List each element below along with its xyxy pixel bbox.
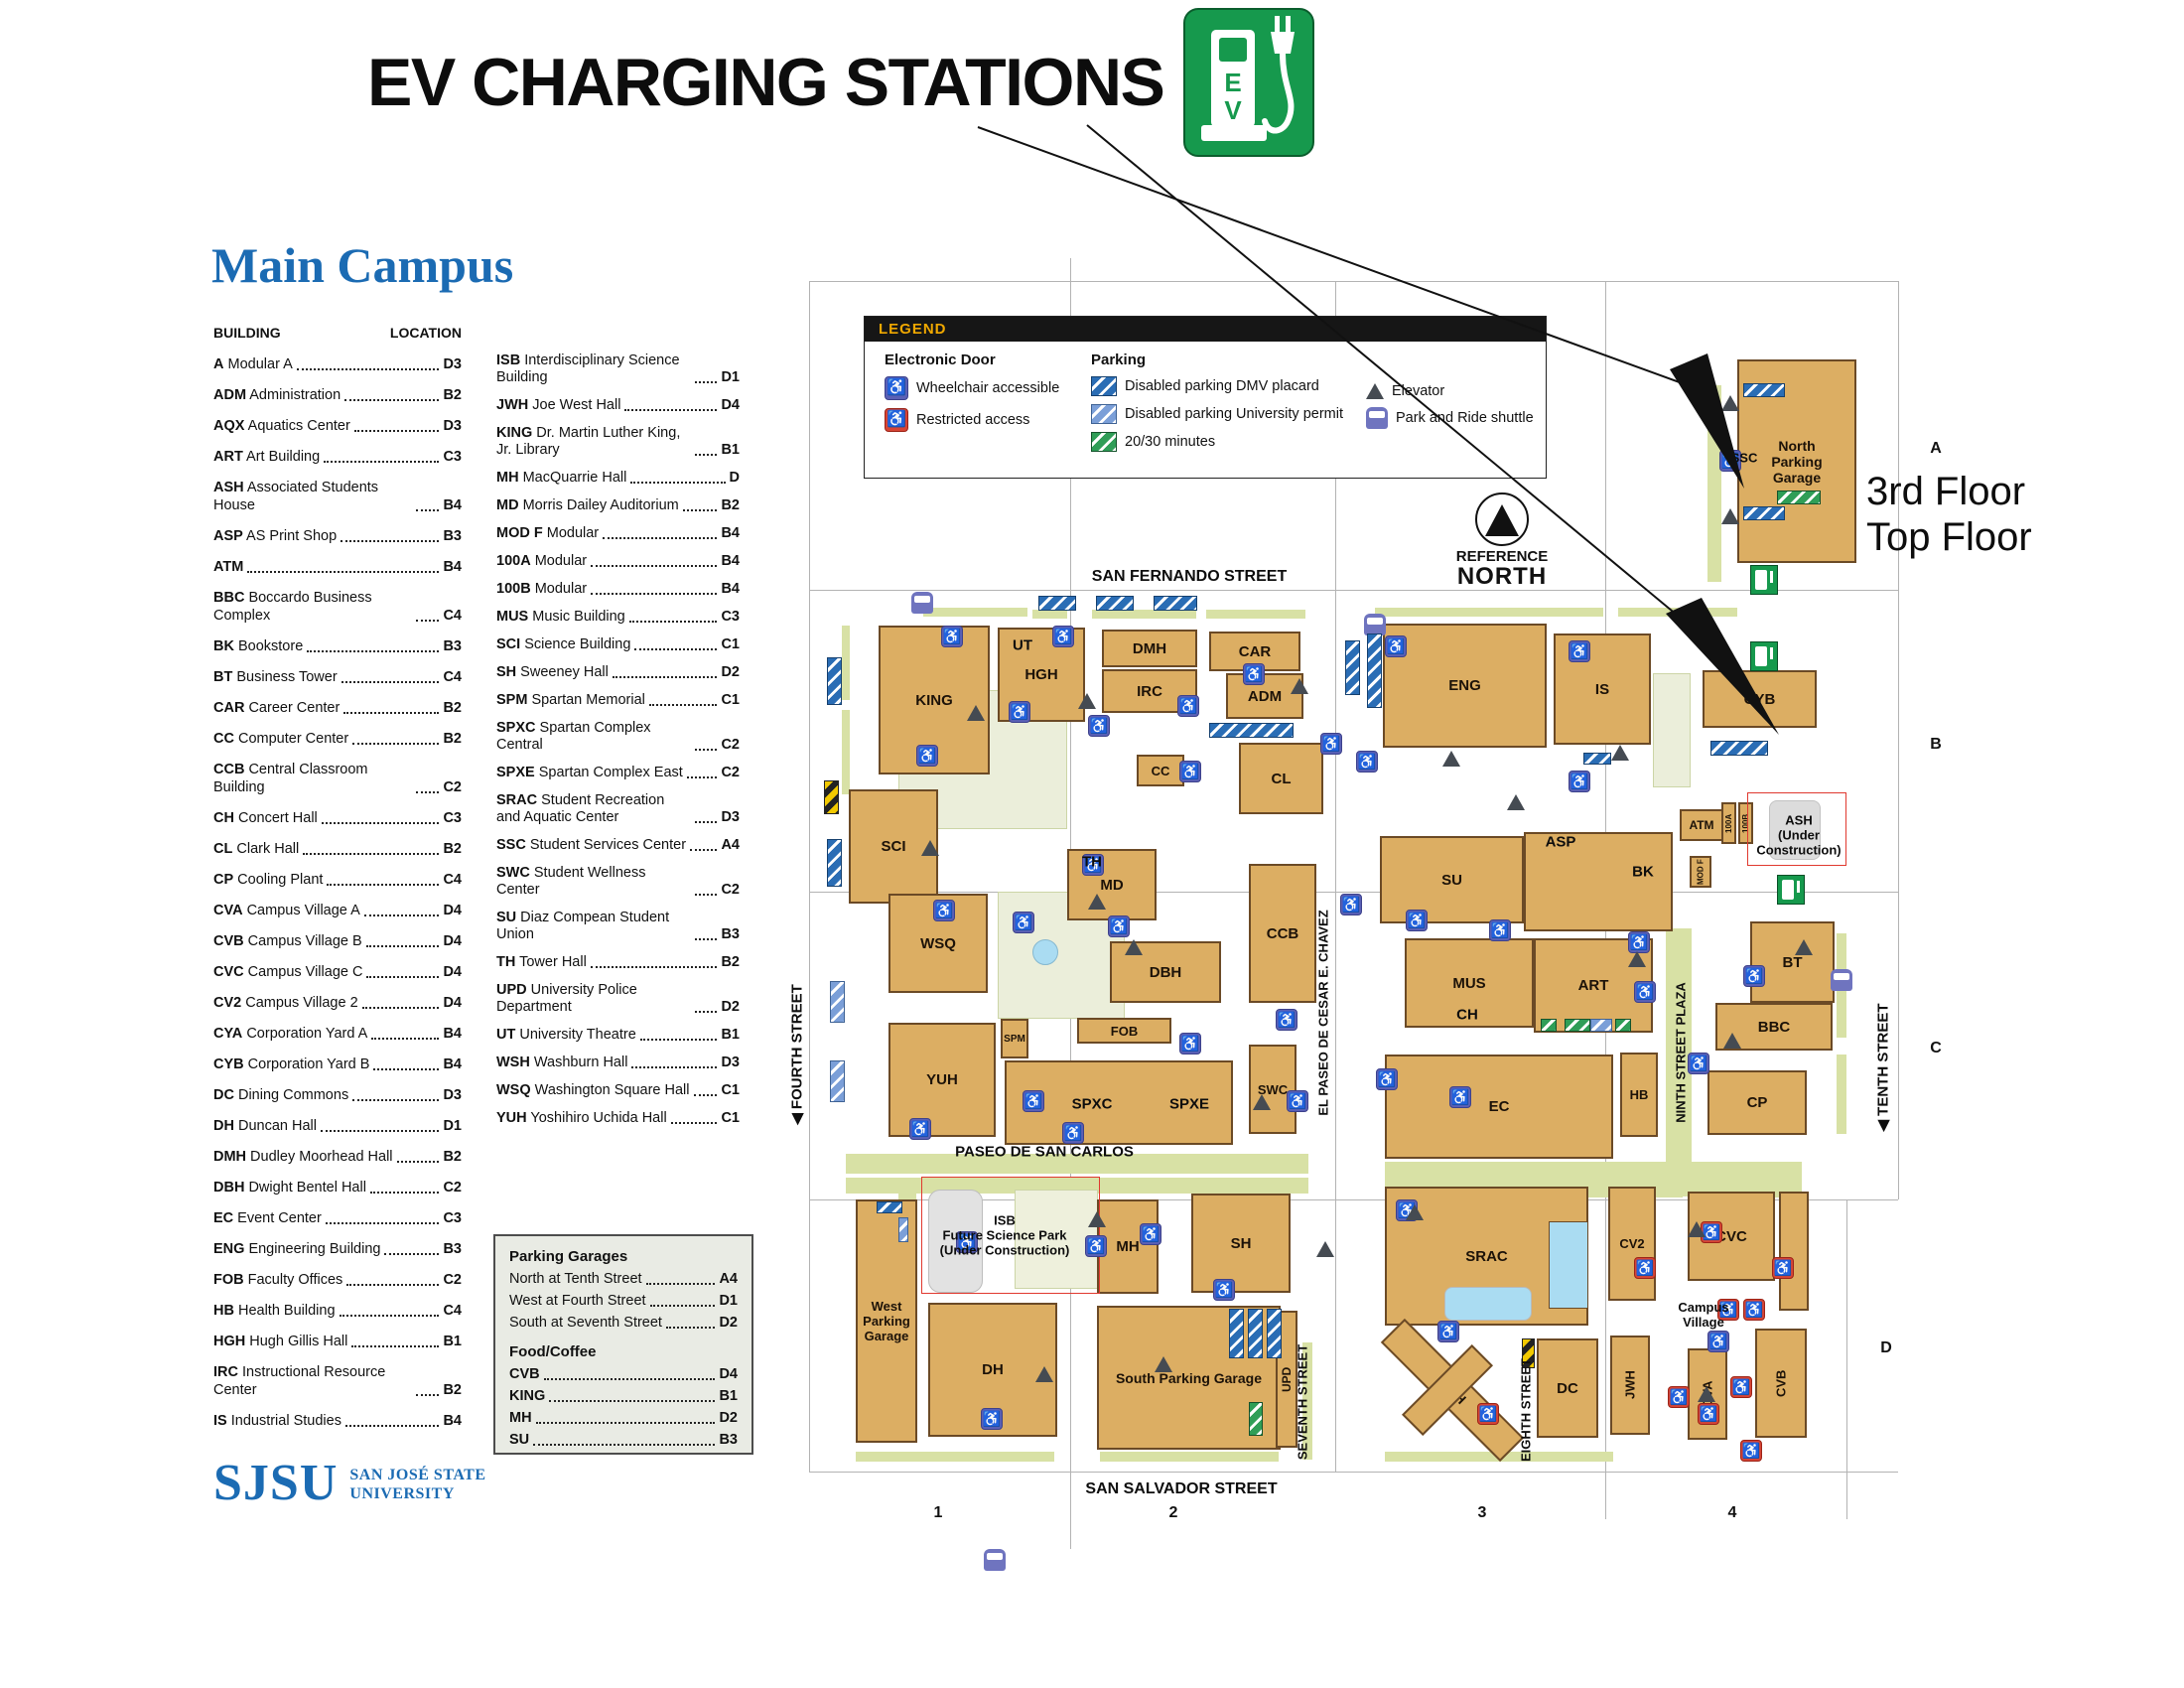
median xyxy=(1375,608,1603,617)
bus-icon xyxy=(911,592,933,614)
list-item: ENG Engineering BuildingB3 xyxy=(213,1240,462,1258)
p-2030-icon xyxy=(1777,491,1821,504)
list-item: ISB Interdisciplinary Science BuildingD1 xyxy=(496,352,740,386)
list-item: ADM AdministrationB2 xyxy=(213,386,462,404)
list-item: North at Tenth StreetA4 xyxy=(509,1270,738,1288)
median xyxy=(1707,385,1721,582)
elev-icon xyxy=(1628,951,1646,967)
grid-row-label: B xyxy=(1930,736,1942,754)
list-item: SSC Student Services CenterA4 xyxy=(496,837,740,854)
wc-blue-icon: ♿ xyxy=(885,376,908,400)
list-item: South at Seventh StreetD2 xyxy=(509,1314,738,1332)
median xyxy=(1206,610,1305,619)
median xyxy=(856,1452,1054,1462)
building-ec: EC xyxy=(1385,1055,1613,1159)
bus-icon xyxy=(1364,614,1386,635)
building-cvb: CVB xyxy=(1755,1329,1807,1438)
srac-pool xyxy=(1549,1221,1588,1309)
wc-blue-icon: ♿ xyxy=(1052,626,1074,647)
wc-blue-icon: ♿ xyxy=(1356,751,1378,773)
grid-row-label: C xyxy=(1930,1040,1942,1057)
grid-line xyxy=(809,281,1898,282)
grid-col-label: 1 xyxy=(934,1504,943,1522)
wc-blue-icon: ♿ xyxy=(1009,701,1030,723)
median xyxy=(842,626,850,700)
median xyxy=(1032,610,1067,619)
list-item: DH Duncan HallD1 xyxy=(213,1117,462,1135)
p-2030-icon xyxy=(1091,432,1117,452)
p-dmv-icon xyxy=(1743,506,1785,520)
p-dmv-icon xyxy=(1710,741,1768,756)
bus-icon xyxy=(1366,407,1388,429)
wc-blue-icon: ♿ xyxy=(909,1118,931,1140)
list-item: CVA Campus Village AD4 xyxy=(213,902,462,919)
elev-icon xyxy=(1125,939,1143,955)
list-item: CYA Corporation Yard AB4 xyxy=(213,1025,462,1043)
p-dmv-icon xyxy=(1209,723,1294,738)
parking-garages-list: North at Tenth StreetA4West at Fourth St… xyxy=(509,1270,738,1332)
elev-icon xyxy=(1088,894,1106,910)
grid-line xyxy=(809,281,810,1472)
elev-icon xyxy=(921,840,939,856)
wc-blue-icon: ♿ xyxy=(941,626,963,647)
wc-blue-icon: ♿ xyxy=(1179,761,1201,782)
elev-icon xyxy=(1795,939,1813,955)
building-modf: MOD F xyxy=(1690,856,1711,888)
map-label: EL PASEO DE CESAR E. CHAVEZ xyxy=(1317,910,1332,1115)
list-item: MD Morris Dailey AuditoriumB2 xyxy=(496,497,740,514)
building-ccb: CCB xyxy=(1249,864,1316,1003)
list-item: JWH Joe West HallD4 xyxy=(496,397,740,414)
ev-icon xyxy=(1777,875,1805,905)
list-item: BT Business TowerC4 xyxy=(213,668,462,686)
list-item: IRC Instructional Resource CenterB2 xyxy=(213,1363,462,1399)
grid-col-label: 2 xyxy=(1169,1504,1178,1522)
wc-blue-icon: ♿ xyxy=(1449,1086,1471,1108)
wc-red-icon: ♿ xyxy=(1698,1403,1719,1425)
map-label: PASEO DE SAN CARLOS xyxy=(955,1143,1134,1160)
elev-icon xyxy=(1442,751,1460,767)
list-item: MH MacQuarrie HallD xyxy=(496,470,740,487)
wc-blue-icon: ♿ xyxy=(1088,715,1110,737)
elev-icon xyxy=(1253,1094,1271,1110)
grid-line xyxy=(809,892,1898,893)
building-yuh: YUH xyxy=(888,1023,996,1137)
wc-blue-icon: ♿ xyxy=(1287,1090,1308,1112)
elev-icon xyxy=(1406,1204,1424,1220)
food-coffee-list: CVBD4KINGB1MHD2SUB3 xyxy=(509,1365,738,1449)
bus-icon xyxy=(1831,969,1852,991)
map-label: SAN SALVADOR STREET xyxy=(1085,1480,1277,1498)
elev-icon xyxy=(1088,1211,1106,1227)
building-cc: CC xyxy=(1137,755,1184,786)
wc-blue-icon: ♿ xyxy=(1340,894,1362,915)
elev-icon xyxy=(1291,678,1308,694)
map-label: ◀ TENTH STREET xyxy=(1874,1003,1891,1131)
list-item: ASH Associated Students HouseB4 xyxy=(213,479,462,514)
reference-north: REFERENCE NORTH xyxy=(1437,492,1567,591)
pond-icon xyxy=(1032,939,1058,965)
list-item: HB Health BuildingC4 xyxy=(213,1302,462,1320)
wc-red-icon: ♿ xyxy=(1772,1257,1794,1279)
building-sh: SH xyxy=(1191,1194,1291,1293)
floor-note: 3rd Floor Top Floor xyxy=(1866,469,2032,560)
elev-icon xyxy=(1316,1241,1334,1257)
sjsu-logo-line2: UNIVERSITY xyxy=(349,1484,485,1503)
building-list-col2: ISB Interdisciplinary Science BuildingD1… xyxy=(496,352,740,1138)
grid-line xyxy=(809,1472,1898,1473)
grid-row-label: D xyxy=(1880,1339,1892,1357)
elev-icon xyxy=(1721,395,1739,411)
legend-label: Restricted access xyxy=(916,412,1029,428)
building-block xyxy=(1779,1192,1809,1311)
legend-parking: Parking Disabled parking DMV placardDisa… xyxy=(1091,352,1343,452)
floor-note-line1: 3rd Floor xyxy=(1866,469,2032,514)
p-univ-icon xyxy=(1590,1019,1612,1032)
legend-label: Wheelchair accessible xyxy=(916,380,1059,396)
p-univ-icon xyxy=(898,1217,908,1242)
list-item: FOB Faculty OfficesC2 xyxy=(213,1271,462,1289)
elev-icon xyxy=(1366,383,1384,399)
elev-icon xyxy=(1507,794,1525,810)
wc-blue-icon: ♿ xyxy=(981,1408,1003,1430)
bus-icon xyxy=(984,1549,1006,1571)
map-label: EIGHTH STREET xyxy=(1520,1358,1535,1462)
p-dmv-icon xyxy=(1267,1309,1282,1358)
list-item: SCI Science BuildingC1 xyxy=(496,636,740,653)
legend-title: LEGEND xyxy=(865,317,1546,342)
p-univ-icon xyxy=(1091,404,1117,424)
wc-blue-icon: ♿ xyxy=(1320,733,1342,755)
parking-food-box: Parking Garages North at Tenth StreetA4W… xyxy=(493,1234,753,1455)
map-label: SPXC xyxy=(1072,1095,1113,1112)
wc-blue-icon: ♿ xyxy=(1179,1033,1201,1055)
map-label: UT xyxy=(1013,636,1032,653)
map-label: ISB Future Science Park (Under Construct… xyxy=(940,1214,1070,1259)
p-dmv-icon xyxy=(1583,753,1611,765)
building-cl: CL xyxy=(1239,743,1323,814)
wc-blue-icon: ♿ xyxy=(1177,695,1199,717)
legend-label: Elevator xyxy=(1392,383,1444,399)
elev-icon xyxy=(1611,745,1629,761)
list-item: CV2 Campus Village 2D4 xyxy=(213,994,462,1012)
wc-blue-icon: ♿ xyxy=(1243,663,1265,685)
floor-note-line2: Top Floor xyxy=(1866,514,2032,560)
legend-label: 20/30 minutes xyxy=(1125,434,1215,450)
elev-icon xyxy=(1688,1221,1706,1237)
list-item: KING Dr. Martin Luther King, Jr. Library… xyxy=(496,425,740,459)
parking-garages-title: Parking Garages xyxy=(509,1248,738,1266)
building-list-col1: BUILDING LOCATION A Modular AD3ADM Admin… xyxy=(213,324,462,1443)
legend-row: Park and Ride shuttle xyxy=(1366,407,1534,429)
wc-blue-icon: ♿ xyxy=(933,900,955,921)
grid-line xyxy=(809,590,1898,591)
wc-blue-icon: ♿ xyxy=(1108,915,1130,937)
wc-red-icon: ♿ xyxy=(1740,1440,1762,1462)
svg-text:V: V xyxy=(1224,95,1242,125)
building-cv2: CV2 xyxy=(1608,1187,1656,1301)
list-item: ART Art BuildingC3 xyxy=(213,448,462,466)
list-item: A Modular AD3 xyxy=(213,355,462,373)
wc-blue-icon: ♿ xyxy=(1489,919,1511,941)
srac-pool xyxy=(1444,1287,1532,1321)
median xyxy=(1092,610,1196,619)
page-title: EV CHARGING STATIONS xyxy=(367,44,1152,121)
map-label: NINTH STREET PLAZA xyxy=(1675,982,1690,1123)
svg-text:E: E xyxy=(1224,68,1241,97)
wc-blue-icon: ♿ xyxy=(1013,912,1034,933)
list-item: SPXE Spartan Complex EastC2 xyxy=(496,765,740,781)
legend-row: Disabled parking DMV placard xyxy=(1091,376,1343,396)
wc-blue-icon: ♿ xyxy=(1213,1279,1235,1301)
map-label: SAN FERNANDO STREET xyxy=(1092,568,1287,586)
p-univ-icon xyxy=(830,1060,845,1102)
wc-blue-icon: ♿ xyxy=(1085,1235,1107,1257)
p-dmv-icon xyxy=(1248,1309,1263,1358)
wc-blue-icon: ♿ xyxy=(1062,1122,1084,1144)
median xyxy=(842,710,850,794)
p-dmv-icon xyxy=(1345,640,1360,695)
wc-blue-icon: ♿ xyxy=(1140,1223,1161,1245)
p-dmv-icon xyxy=(827,839,842,887)
map-label: ASP xyxy=(1546,833,1576,850)
list-item: UT University TheatreB1 xyxy=(496,1027,740,1044)
wc-blue-icon: ♿ xyxy=(916,745,938,767)
list-item: DBH Dwight Bentel HallC2 xyxy=(213,1179,462,1196)
wc-blue-icon: ♿ xyxy=(1376,1068,1398,1090)
wc-red-icon: ♿ xyxy=(1743,1299,1765,1321)
list-item: ASP AS Print ShopB3 xyxy=(213,527,462,545)
ev-icon xyxy=(1750,641,1778,671)
p-dmv-icon xyxy=(1367,633,1382,708)
sjsu-logo: SJSU SAN JOSÉ STATE UNIVERSITY xyxy=(213,1460,486,1507)
list-item: BBC Boccardo Business ComplexC4 xyxy=(213,589,462,625)
building-bt: BT xyxy=(1750,921,1835,1003)
elev-icon xyxy=(1078,693,1096,709)
list-item: SH Sweeney HallD2 xyxy=(496,664,740,681)
map-label: BK xyxy=(1632,863,1654,880)
list-item: West at Fourth StreetD1 xyxy=(509,1292,738,1310)
p-dmv-icon xyxy=(877,1201,902,1213)
map-label: TH xyxy=(1082,853,1102,870)
map-label: SSC xyxy=(1731,452,1758,467)
ev-charging-map-page: { "title": "EV CHARGING STATIONS", "floo… xyxy=(0,0,2184,1688)
list-item: DC Dining CommonsD3 xyxy=(213,1086,462,1104)
list-item: CVB Campus Village BD4 xyxy=(213,932,462,950)
list-item: KINGB1 xyxy=(509,1387,738,1405)
p-dmv-icon xyxy=(1154,596,1197,611)
legend-row: Elevator xyxy=(1366,383,1534,399)
list-item: 100A ModularB4 xyxy=(496,553,740,570)
lawn xyxy=(1653,673,1691,787)
list-item: CCB Central Classroom BuildingC2 xyxy=(213,761,462,796)
wc-blue-icon: ♿ xyxy=(1569,771,1590,792)
wc-blue-icon: ♿ xyxy=(1569,640,1590,662)
p-dmv-icon xyxy=(1096,596,1134,611)
section-heading: Main Campus xyxy=(211,236,513,294)
list-item: 100B ModularB4 xyxy=(496,581,740,598)
building-jwh: JWH xyxy=(1610,1336,1650,1435)
map-label: ASH (Under Construction) xyxy=(1756,814,1841,859)
wc-red-icon: ♿ xyxy=(1730,1376,1752,1398)
grid-col-label: 4 xyxy=(1728,1504,1737,1522)
p-2030-icon xyxy=(1541,1019,1557,1032)
list-item: SPM Spartan MemorialC1 xyxy=(496,692,740,709)
elev-icon xyxy=(1155,1356,1172,1372)
wc-blue-icon: ♿ xyxy=(1437,1321,1459,1342)
wc-blue-icon: ♿ xyxy=(1276,1009,1297,1031)
building-cyb: CYB xyxy=(1703,670,1817,728)
wc-blue-icon: ♿ xyxy=(1743,965,1765,987)
map-label: Campus Village xyxy=(1678,1301,1728,1331)
elev-icon xyxy=(1035,1366,1053,1382)
legend: LEGEND Electronic Door ♿Wheelchair acces… xyxy=(864,316,1547,479)
grid-row-label: A xyxy=(1930,440,1942,458)
wc-blue-icon: ♿ xyxy=(1634,981,1656,1003)
list-item: CL Clark HallB2 xyxy=(213,840,462,858)
ev-charging-sign-icon: E V xyxy=(1183,8,1314,157)
elev-icon xyxy=(967,705,985,721)
list-item: CVBD4 xyxy=(509,1365,738,1383)
legend-row: ♿Wheelchair accessible xyxy=(885,376,1059,400)
food-coffee-title: Food/Coffee xyxy=(509,1343,738,1361)
list-item: WSQ Washington Square HallC1 xyxy=(496,1082,740,1099)
legend-parking-heading: Parking xyxy=(1091,352,1343,368)
header-building: BUILDING xyxy=(213,324,281,342)
map-label: SPXE xyxy=(1169,1095,1209,1112)
wc-blue-icon: ♿ xyxy=(1406,910,1428,931)
list-item: WSH Washburn HallD3 xyxy=(496,1055,740,1071)
wc-blue-icon: ♿ xyxy=(1688,1053,1709,1074)
legend-row: Disabled parking University permit xyxy=(1091,404,1343,424)
map-label: ◀ FOURTH STREET xyxy=(788,984,805,1125)
building-su: SU xyxy=(1380,836,1524,923)
legend-electronic-door: Electronic Door ♿Wheelchair accessible♿R… xyxy=(885,352,1059,432)
list-item: MHD2 xyxy=(509,1409,738,1427)
list-item: SPXC Spartan Complex CentralC2 xyxy=(496,720,740,754)
list-item: MOD F ModularB4 xyxy=(496,525,740,542)
list-item: CVC Campus Village CD4 xyxy=(213,963,462,981)
grid-line xyxy=(1898,281,1899,1199)
list-item: MUS Music BuildingC3 xyxy=(496,609,740,626)
map-label: CH xyxy=(1456,1006,1478,1023)
list-item: CAR Career CenterB2 xyxy=(213,699,462,717)
list-item: SUB3 xyxy=(509,1431,738,1449)
list-item: SRAC Student Recreation and Aquatic Cent… xyxy=(496,792,740,826)
building-hb: HB xyxy=(1620,1053,1658,1137)
wc-red-icon: ♿ xyxy=(1634,1257,1656,1279)
building-swc: SWC xyxy=(1249,1045,1297,1134)
wc-red-icon: ♿ xyxy=(1668,1386,1690,1408)
legend-row: 20/30 minutes xyxy=(1091,432,1343,452)
building-cp: CP xyxy=(1707,1070,1807,1135)
list-item: CC Computer CenterB2 xyxy=(213,730,462,748)
building-dmh: DMH xyxy=(1102,630,1197,667)
elev-icon xyxy=(1723,1033,1741,1049)
list-item: SWC Student Wellness CenterC2 xyxy=(496,865,740,899)
sjsu-logo-text: SJSU xyxy=(213,1460,338,1507)
list-item: BK BookstoreB3 xyxy=(213,637,462,655)
p-dmv-icon xyxy=(1091,376,1117,396)
building-atm: ATM xyxy=(1680,809,1723,841)
ev-icon xyxy=(1750,565,1778,595)
median xyxy=(1618,608,1737,617)
wc-blue-icon: ♿ xyxy=(1023,1090,1044,1112)
list-item: DMH Dudley Moorhead HallB2 xyxy=(213,1148,462,1166)
legend-door-heading: Electronic Door xyxy=(885,352,1059,368)
list-item: SU Diaz Compean Student UnionB3 xyxy=(496,910,740,943)
list-item: CP Cooling PlantC4 xyxy=(213,871,462,889)
building-list-header: BUILDING LOCATION xyxy=(213,324,462,342)
list-item: IS Industrial StudiesB4 xyxy=(213,1412,462,1430)
p-dmv-icon xyxy=(1229,1309,1244,1358)
list-item: AQX Aquatics CenterD3 xyxy=(213,417,462,435)
p-univ-icon xyxy=(830,981,845,1023)
building-eng: ENG xyxy=(1383,624,1547,748)
legend-misc: ElevatorPark and Ride shuttle xyxy=(1366,352,1534,429)
wc-blue-icon: ♿ xyxy=(1385,635,1407,657)
legend-label: Disabled parking DMV placard xyxy=(1125,378,1319,394)
p-dmv-icon xyxy=(827,657,842,705)
wc-blue-icon: ♿ xyxy=(1707,1331,1729,1352)
list-item: CYB Corporation Yard BB4 xyxy=(213,1055,462,1073)
building-fob: FOB xyxy=(1077,1018,1171,1044)
list-item: ATMB4 xyxy=(213,558,462,576)
wc-red-icon: ♿ xyxy=(885,408,908,432)
reference-north-line2: NORTH xyxy=(1437,563,1567,591)
median xyxy=(923,608,1027,617)
hazard-icon xyxy=(824,780,839,814)
elev-icon xyxy=(1698,1386,1715,1402)
median xyxy=(1837,1055,1846,1134)
legend-label: Disabled parking University permit xyxy=(1125,406,1343,422)
list-item: CH Concert HallC3 xyxy=(213,809,462,827)
building-spm: SPM xyxy=(1001,1019,1028,1058)
building-100a: 100A xyxy=(1721,802,1736,844)
list-item: HGH Hugh Gillis HallB1 xyxy=(213,1333,462,1350)
wc-red-icon: ♿ xyxy=(1477,1403,1499,1425)
north-arrow-icon xyxy=(1475,492,1529,546)
grid-col-label: 3 xyxy=(1478,1504,1487,1522)
p-dmv-icon xyxy=(1743,383,1785,397)
median xyxy=(1100,1452,1279,1462)
list-item: TH Tower HallB2 xyxy=(496,954,740,971)
p-2030-icon xyxy=(1615,1019,1631,1032)
p-2030-icon xyxy=(1565,1019,1590,1032)
building-dc: DC xyxy=(1537,1338,1598,1438)
list-item: EC Event CenterC3 xyxy=(213,1209,462,1227)
map-label: SEVENTH STREET xyxy=(1297,1344,1311,1460)
p-dmv-icon xyxy=(1038,596,1076,611)
header-location: LOCATION xyxy=(390,324,462,342)
elev-icon xyxy=(1721,508,1739,524)
building-md: MD xyxy=(1067,849,1157,920)
wc-blue-icon: ♿ xyxy=(1628,931,1650,953)
legend-row: ♿Restricted access xyxy=(885,408,1059,432)
list-item: UPD University Police DepartmentD2 xyxy=(496,982,740,1016)
p-2030-icon xyxy=(1249,1402,1263,1436)
legend-label: Park and Ride shuttle xyxy=(1396,410,1534,426)
list-item: YUH Yoshihiro Uchida HallC1 xyxy=(496,1110,740,1127)
sjsu-logo-line1: SAN JOSÉ STATE xyxy=(349,1466,485,1484)
